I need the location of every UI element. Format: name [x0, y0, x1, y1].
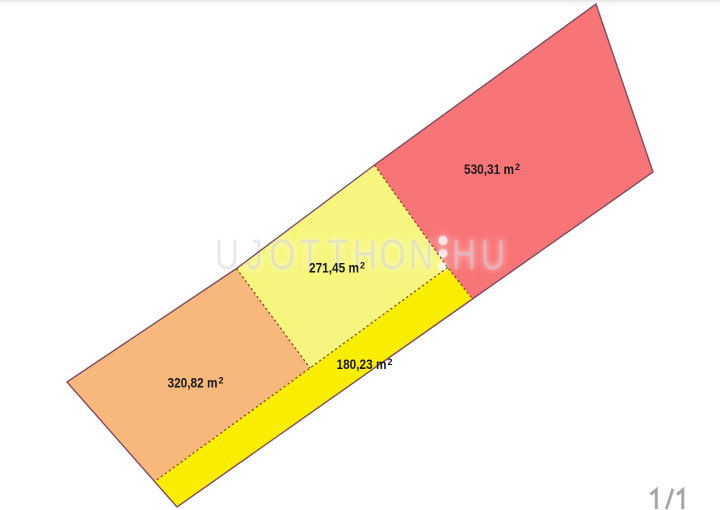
svg-text:2: 2 [219, 376, 224, 386]
svg-text:O: O [379, 231, 405, 279]
svg-text:N: N [409, 231, 433, 279]
svg-text:H: H [452, 231, 476, 279]
svg-text:2: 2 [388, 357, 393, 367]
svg-text:180,23 m: 180,23 m [337, 357, 387, 372]
svg-text:O: O [269, 231, 295, 279]
svg-text:U: U [481, 231, 505, 279]
svg-text:U: U [215, 231, 239, 279]
svg-text:2: 2 [360, 261, 365, 271]
svg-text:271,45 m: 271,45 m [309, 261, 359, 276]
svg-text:2: 2 [515, 162, 520, 172]
svg-text:320,82 m: 320,82 m [168, 376, 218, 391]
svg-text:530,31 m: 530,31 m [464, 162, 514, 177]
